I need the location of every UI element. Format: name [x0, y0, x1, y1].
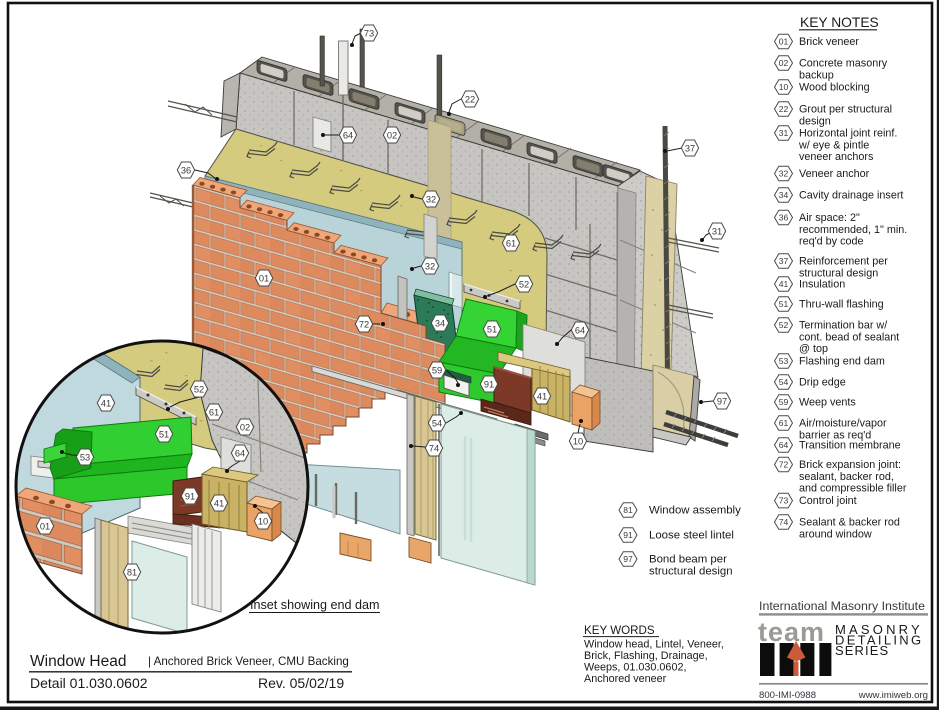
svg-text:structural design: structural design: [649, 565, 733, 577]
svg-text:team: team: [758, 617, 825, 647]
svg-text:Drip edge: Drip edge: [799, 377, 846, 389]
svg-text:Inset showing end dam: Inset showing end dam: [250, 598, 380, 612]
svg-text:73: 73: [364, 28, 374, 38]
svg-text:10: 10: [258, 516, 268, 526]
svg-text:64: 64: [779, 440, 789, 450]
svg-text:backup: backup: [799, 69, 834, 81]
svg-text:97: 97: [717, 396, 727, 406]
svg-text:74: 74: [429, 443, 439, 453]
svg-text:51: 51: [779, 299, 789, 309]
svg-text:cont. bead of sealant: cont. bead of sealant: [799, 331, 899, 343]
svg-text:02: 02: [387, 130, 397, 140]
svg-text:41: 41: [537, 391, 547, 401]
svg-text:Reinforcement per: Reinforcement per: [799, 256, 888, 268]
svg-text:51: 51: [159, 429, 169, 439]
svg-text:91: 91: [185, 491, 195, 501]
svg-text:32: 32: [779, 169, 789, 179]
svg-text:97: 97: [623, 554, 633, 564]
svg-text:Brick veneer: Brick veneer: [799, 36, 859, 48]
svg-text:Weeps, 01.030.0602,: Weeps, 01.030.0602,: [584, 662, 686, 674]
svg-text:Window head, Lintel, Veneer,: Window head, Lintel, Veneer,: [584, 639, 724, 651]
svg-text:10: 10: [779, 82, 789, 92]
svg-text:32: 32: [426, 194, 436, 204]
svg-text:72: 72: [359, 319, 369, 329]
svg-text:SERIES: SERIES: [835, 643, 889, 658]
svg-text:02: 02: [240, 422, 250, 432]
svg-text:Air/moisture/vapor: Air/moisture/vapor: [799, 418, 887, 430]
svg-text:Anchored veneer: Anchored veneer: [584, 673, 667, 685]
svg-text:@ top: @ top: [799, 343, 828, 355]
svg-text:and compressible filler: and compressible filler: [799, 483, 907, 495]
svg-text:sealant, backer rod,: sealant, backer rod,: [799, 471, 894, 483]
svg-text:64: 64: [575, 325, 585, 335]
svg-text:Window assembly: Window assembly: [649, 505, 741, 517]
svg-text:52: 52: [194, 384, 204, 394]
svg-text:design: design: [799, 115, 831, 127]
svg-text:61: 61: [209, 407, 219, 417]
svg-text:54: 54: [432, 418, 442, 428]
svg-text:54: 54: [779, 377, 789, 387]
svg-text:41: 41: [101, 398, 111, 408]
svg-text:81: 81: [127, 567, 137, 577]
svg-text:22: 22: [465, 94, 475, 104]
svg-text:74: 74: [779, 517, 789, 527]
svg-text:01: 01: [40, 521, 50, 531]
svg-text:Flashing end dam: Flashing end dam: [799, 356, 885, 368]
svg-text:Loose steel lintel: Loose steel lintel: [649, 530, 734, 542]
svg-text:61: 61: [779, 418, 789, 428]
svg-text:31: 31: [712, 226, 722, 236]
svg-text:91: 91: [623, 530, 633, 540]
svg-text:37: 37: [685, 143, 695, 153]
svg-text:01: 01: [779, 37, 789, 47]
svg-text:72: 72: [779, 460, 789, 470]
svg-text:Insulation: Insulation: [799, 279, 845, 291]
svg-text:| Anchored Brick Veneer, CMU B: | Anchored Brick Veneer, CMU Backing: [148, 655, 349, 668]
svg-text:Window Head: Window Head: [30, 653, 127, 670]
svg-text:Wood blocking: Wood blocking: [799, 82, 870, 94]
svg-text:Termination bar w/: Termination bar w/: [799, 320, 887, 332]
svg-text:59: 59: [779, 397, 789, 407]
svg-text:02: 02: [779, 58, 789, 68]
svg-text:91: 91: [484, 379, 494, 389]
svg-text:64: 64: [343, 130, 353, 140]
svg-text:Weep vents: Weep vents: [799, 397, 856, 409]
svg-text:32: 32: [425, 261, 435, 271]
svg-text:34: 34: [779, 190, 789, 200]
svg-text:800-IMI-0988: 800-IMI-0988: [759, 690, 816, 701]
svg-text:Rev. 05/02/19: Rev. 05/02/19: [258, 675, 344, 691]
svg-text:recommended, 1" min.: recommended, 1" min.: [799, 224, 907, 236]
svg-text:37: 37: [779, 256, 789, 266]
svg-text:Detail 01.030.0602: Detail 01.030.0602: [30, 675, 148, 691]
svg-text:International Masonry Institut: International Masonry Institute: [759, 599, 925, 613]
svg-text:Cavity drainage insert: Cavity drainage insert: [799, 190, 903, 202]
svg-text:around window: around window: [799, 528, 872, 540]
svg-text:Air space: 2": Air space: 2": [799, 212, 860, 224]
svg-text:KEY WORDS: KEY WORDS: [584, 624, 655, 637]
svg-text:22: 22: [779, 104, 789, 114]
svg-text:41: 41: [779, 279, 789, 289]
svg-text:64: 64: [235, 448, 245, 458]
svg-text:www.imiweb.org: www.imiweb.org: [858, 690, 928, 701]
svg-text:Veneer anchor: Veneer anchor: [799, 168, 870, 180]
svg-text:Brick expansion joint:: Brick expansion joint:: [799, 459, 901, 471]
svg-text:73: 73: [779, 496, 789, 506]
svg-text:Concrete masonry: Concrete masonry: [799, 58, 888, 70]
svg-text:10: 10: [573, 436, 583, 446]
svg-text:01: 01: [259, 273, 269, 283]
svg-text:34: 34: [435, 318, 445, 328]
svg-text:Bond beam per: Bond beam per: [649, 554, 727, 566]
svg-text:53: 53: [80, 452, 90, 462]
svg-text:Transition membrane: Transition membrane: [799, 440, 901, 452]
svg-text:w/ eye & pintle: w/ eye & pintle: [798, 139, 869, 151]
svg-text:Thru-wall flashing: Thru-wall flashing: [799, 299, 884, 311]
svg-text:41: 41: [214, 498, 224, 508]
svg-text:Sealant & backer rod: Sealant & backer rod: [799, 517, 900, 529]
svg-text:Control joint: Control joint: [799, 495, 857, 507]
svg-text:53: 53: [779, 356, 789, 366]
svg-text:Brick, Flashing, Drainage,: Brick, Flashing, Drainage,: [584, 650, 708, 662]
svg-text:Horizontal joint reinf.: Horizontal joint reinf.: [799, 128, 897, 140]
svg-text:KEY NOTES: KEY NOTES: [800, 15, 879, 30]
svg-text:52: 52: [779, 320, 789, 330]
svg-text:59: 59: [432, 365, 442, 375]
svg-text:61: 61: [506, 238, 516, 248]
svg-text:Grout per structural: Grout per structural: [799, 104, 892, 116]
svg-text:31: 31: [779, 128, 789, 138]
svg-text:51: 51: [487, 324, 497, 334]
svg-text:structural design: structural design: [799, 267, 878, 279]
svg-text:req'd by code: req'd by code: [799, 236, 864, 248]
svg-text:52: 52: [519, 279, 529, 289]
svg-text:81: 81: [623, 505, 633, 515]
svg-text:veneer anchors: veneer anchors: [799, 151, 874, 163]
svg-text:36: 36: [181, 165, 191, 175]
svg-text:36: 36: [779, 213, 789, 223]
